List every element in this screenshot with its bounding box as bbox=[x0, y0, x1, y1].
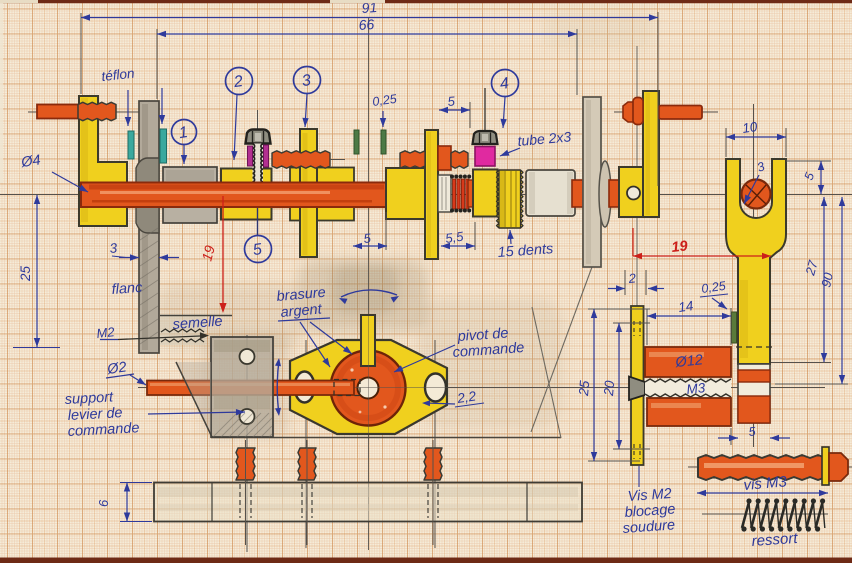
svg-text:2,2: 2,2 bbox=[455, 388, 477, 406]
svg-text:25: 25 bbox=[18, 265, 33, 282]
svg-text:66: 66 bbox=[358, 16, 375, 33]
svg-text:20: 20 bbox=[601, 380, 617, 398]
svg-text:25: 25 bbox=[576, 380, 592, 398]
svg-text:M2: M2 bbox=[96, 324, 116, 341]
svg-text:flanc: flanc bbox=[111, 280, 143, 298]
svg-text:ressort: ressort bbox=[751, 530, 799, 550]
svg-text:5: 5 bbox=[748, 424, 756, 439]
svg-text:19: 19 bbox=[671, 238, 689, 256]
svg-text:5,5: 5,5 bbox=[444, 228, 465, 245]
svg-text:6: 6 bbox=[96, 499, 111, 507]
svg-text:Ø4: Ø4 bbox=[19, 152, 41, 171]
svg-text:14: 14 bbox=[677, 298, 694, 315]
svg-text:M3: M3 bbox=[686, 380, 707, 397]
svg-text:Ø12: Ø12 bbox=[674, 352, 704, 371]
svg-text:10: 10 bbox=[741, 119, 758, 136]
